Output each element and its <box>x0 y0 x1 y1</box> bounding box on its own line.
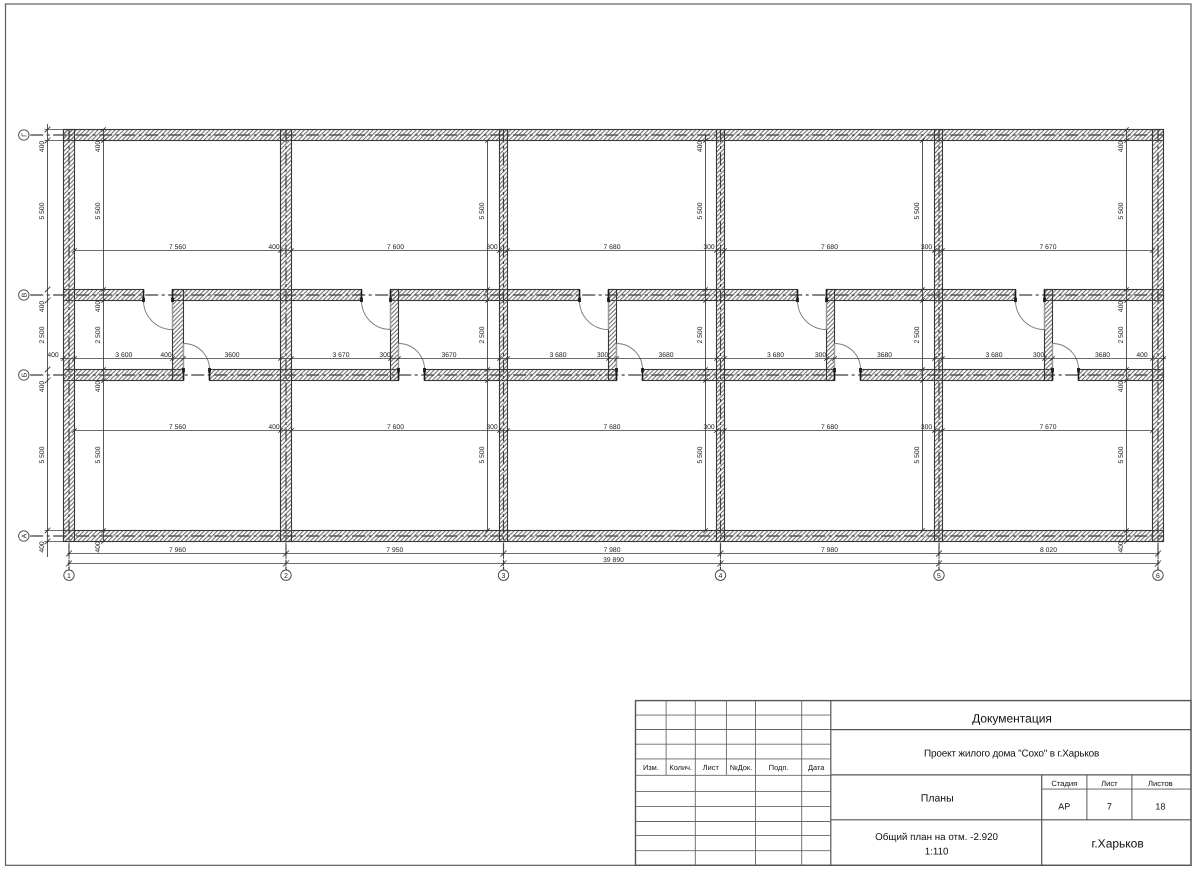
svg-text:7 980: 7 980 <box>821 547 838 554</box>
svg-text:Г: Г <box>21 133 28 137</box>
svg-text:7 980: 7 980 <box>603 547 620 554</box>
svg-text:400: 400 <box>39 141 46 153</box>
svg-text:1: 1 <box>67 573 71 580</box>
svg-text:5 500: 5 500 <box>39 446 46 463</box>
svg-text:3: 3 <box>502 573 506 580</box>
svg-text:400: 400 <box>1136 352 1148 359</box>
svg-text:2: 2 <box>284 573 288 580</box>
svg-text:39 890: 39 890 <box>603 557 624 564</box>
svg-text:7 670: 7 670 <box>1039 244 1056 251</box>
svg-text:Листов: Листов <box>1148 779 1173 788</box>
svg-text:Лист: Лист <box>703 763 720 772</box>
svg-text:400: 400 <box>1118 541 1125 553</box>
svg-text:5 500: 5 500 <box>95 446 102 463</box>
svg-text:400: 400 <box>95 381 102 393</box>
svg-text:400: 400 <box>95 301 102 313</box>
svg-text:7 950: 7 950 <box>386 547 403 554</box>
svg-text:7: 7 <box>1107 802 1112 812</box>
svg-text:Колич.: Колич. <box>669 763 692 772</box>
svg-text:3670: 3670 <box>441 352 456 359</box>
svg-text:400: 400 <box>1118 301 1125 313</box>
svg-text:3680: 3680 <box>877 352 892 359</box>
svg-text:2 500: 2 500 <box>697 326 704 343</box>
svg-text:400: 400 <box>95 141 102 153</box>
svg-text:3 600: 3 600 <box>115 352 132 359</box>
svg-text:7 600: 7 600 <box>387 244 404 251</box>
svg-text:18: 18 <box>1155 802 1165 812</box>
svg-text:1:110: 1:110 <box>925 846 949 857</box>
svg-text:АР: АР <box>1058 802 1070 812</box>
svg-text:5 500: 5 500 <box>697 202 704 219</box>
svg-text:2 500: 2 500 <box>914 326 921 343</box>
svg-text:7 680: 7 680 <box>821 424 838 431</box>
svg-text:Проект жилого дома "Сохо" в г.: Проект жилого дома "Сохо" в г.Харьков <box>924 749 1099 760</box>
svg-text:300: 300 <box>379 352 391 359</box>
svg-text:400: 400 <box>95 541 102 553</box>
svg-text:5 500: 5 500 <box>697 446 704 463</box>
svg-text:3680: 3680 <box>1095 352 1110 359</box>
svg-text:А: А <box>21 533 28 538</box>
svg-text:400: 400 <box>39 381 46 393</box>
svg-text:300: 300 <box>486 424 498 431</box>
svg-text:400: 400 <box>268 424 280 431</box>
svg-text:г.Харьков: г.Харьков <box>1091 837 1143 851</box>
svg-text:Документация: Документация <box>972 712 1052 726</box>
svg-text:3680: 3680 <box>658 352 673 359</box>
svg-text:400: 400 <box>47 352 59 359</box>
svg-text:7 560: 7 560 <box>169 244 186 251</box>
svg-text:7 960: 7 960 <box>169 547 186 554</box>
svg-text:300: 300 <box>703 244 715 251</box>
svg-text:3600: 3600 <box>224 352 239 359</box>
svg-text:7 680: 7 680 <box>603 424 620 431</box>
svg-text:5 500: 5 500 <box>95 202 102 219</box>
svg-text:7 560: 7 560 <box>169 424 186 431</box>
svg-text:2 500: 2 500 <box>1118 326 1125 343</box>
svg-text:2 500: 2 500 <box>479 326 486 343</box>
svg-text:7 680: 7 680 <box>821 244 838 251</box>
svg-text:7 600: 7 600 <box>387 424 404 431</box>
svg-text:Подп.: Подп. <box>769 763 789 772</box>
svg-text:3 680: 3 680 <box>767 352 784 359</box>
svg-text:В: В <box>21 292 28 297</box>
svg-text:3 680: 3 680 <box>985 352 1002 359</box>
svg-text:400: 400 <box>268 244 280 251</box>
svg-text:8 020: 8 020 <box>1040 547 1057 554</box>
svg-text:Общий план на отм. -2.920: Общий план на отм. -2.920 <box>875 832 998 843</box>
svg-text:Изм.: Изм. <box>643 763 659 772</box>
svg-text:3 680: 3 680 <box>549 352 566 359</box>
svg-text:Б: Б <box>21 372 28 377</box>
svg-text:№Док.: №Док. <box>730 763 752 772</box>
svg-text:5 500: 5 500 <box>1118 202 1125 219</box>
svg-text:Дата: Дата <box>808 763 825 772</box>
svg-text:7 680: 7 680 <box>603 244 620 251</box>
svg-text:3 670: 3 670 <box>332 352 349 359</box>
svg-text:400: 400 <box>39 301 46 313</box>
svg-text:300: 300 <box>486 244 498 251</box>
svg-text:5 500: 5 500 <box>1118 446 1125 463</box>
svg-text:5 500: 5 500 <box>479 202 486 219</box>
svg-text:4: 4 <box>719 573 723 580</box>
svg-text:5: 5 <box>937 573 941 580</box>
svg-text:5 500: 5 500 <box>914 202 921 219</box>
svg-text:5 500: 5 500 <box>479 446 486 463</box>
svg-text:400: 400 <box>39 541 46 553</box>
svg-text:6: 6 <box>1156 573 1160 580</box>
svg-text:300: 300 <box>815 352 827 359</box>
svg-text:7 670: 7 670 <box>1039 424 1056 431</box>
svg-text:400: 400 <box>160 352 172 359</box>
svg-text:2 500: 2 500 <box>39 326 46 343</box>
svg-text:5 500: 5 500 <box>39 202 46 219</box>
svg-text:5 500: 5 500 <box>914 446 921 463</box>
svg-text:2 500: 2 500 <box>95 326 102 343</box>
svg-text:400: 400 <box>1118 141 1125 153</box>
svg-text:Лист: Лист <box>1101 779 1118 788</box>
svg-text:400: 400 <box>697 141 704 153</box>
svg-text:Стадия: Стадия <box>1051 779 1077 788</box>
svg-text:300: 300 <box>1033 352 1045 359</box>
svg-text:400: 400 <box>1118 381 1125 393</box>
svg-text:Планы: Планы <box>921 793 954 805</box>
svg-text:300: 300 <box>703 424 715 431</box>
svg-text:300: 300 <box>597 352 609 359</box>
